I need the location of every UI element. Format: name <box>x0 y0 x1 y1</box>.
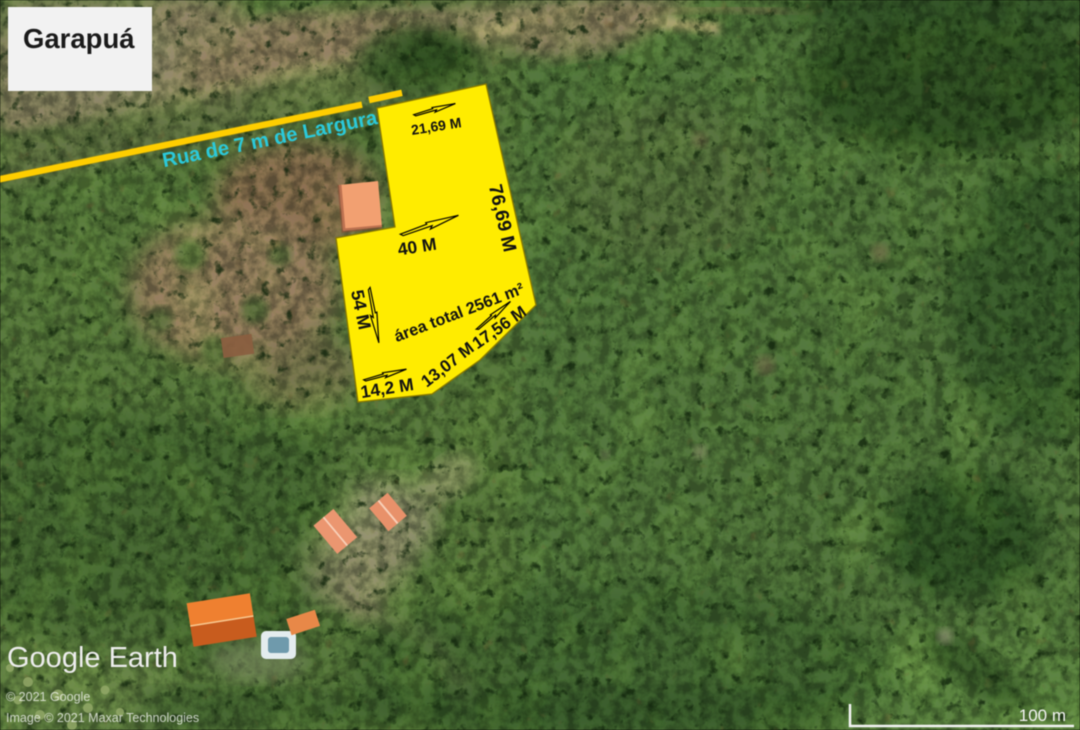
svg-text:Google Earth: Google Earth <box>7 642 178 674</box>
svg-text:Image © 2021 Maxar Technologie: Image © 2021 Maxar Technologies <box>6 711 199 725</box>
svg-text:Garapuá: Garapuá <box>23 23 135 54</box>
svg-text:© 2021 Google: © 2021 Google <box>6 690 90 704</box>
svg-text:100 m: 100 m <box>1019 706 1066 725</box>
